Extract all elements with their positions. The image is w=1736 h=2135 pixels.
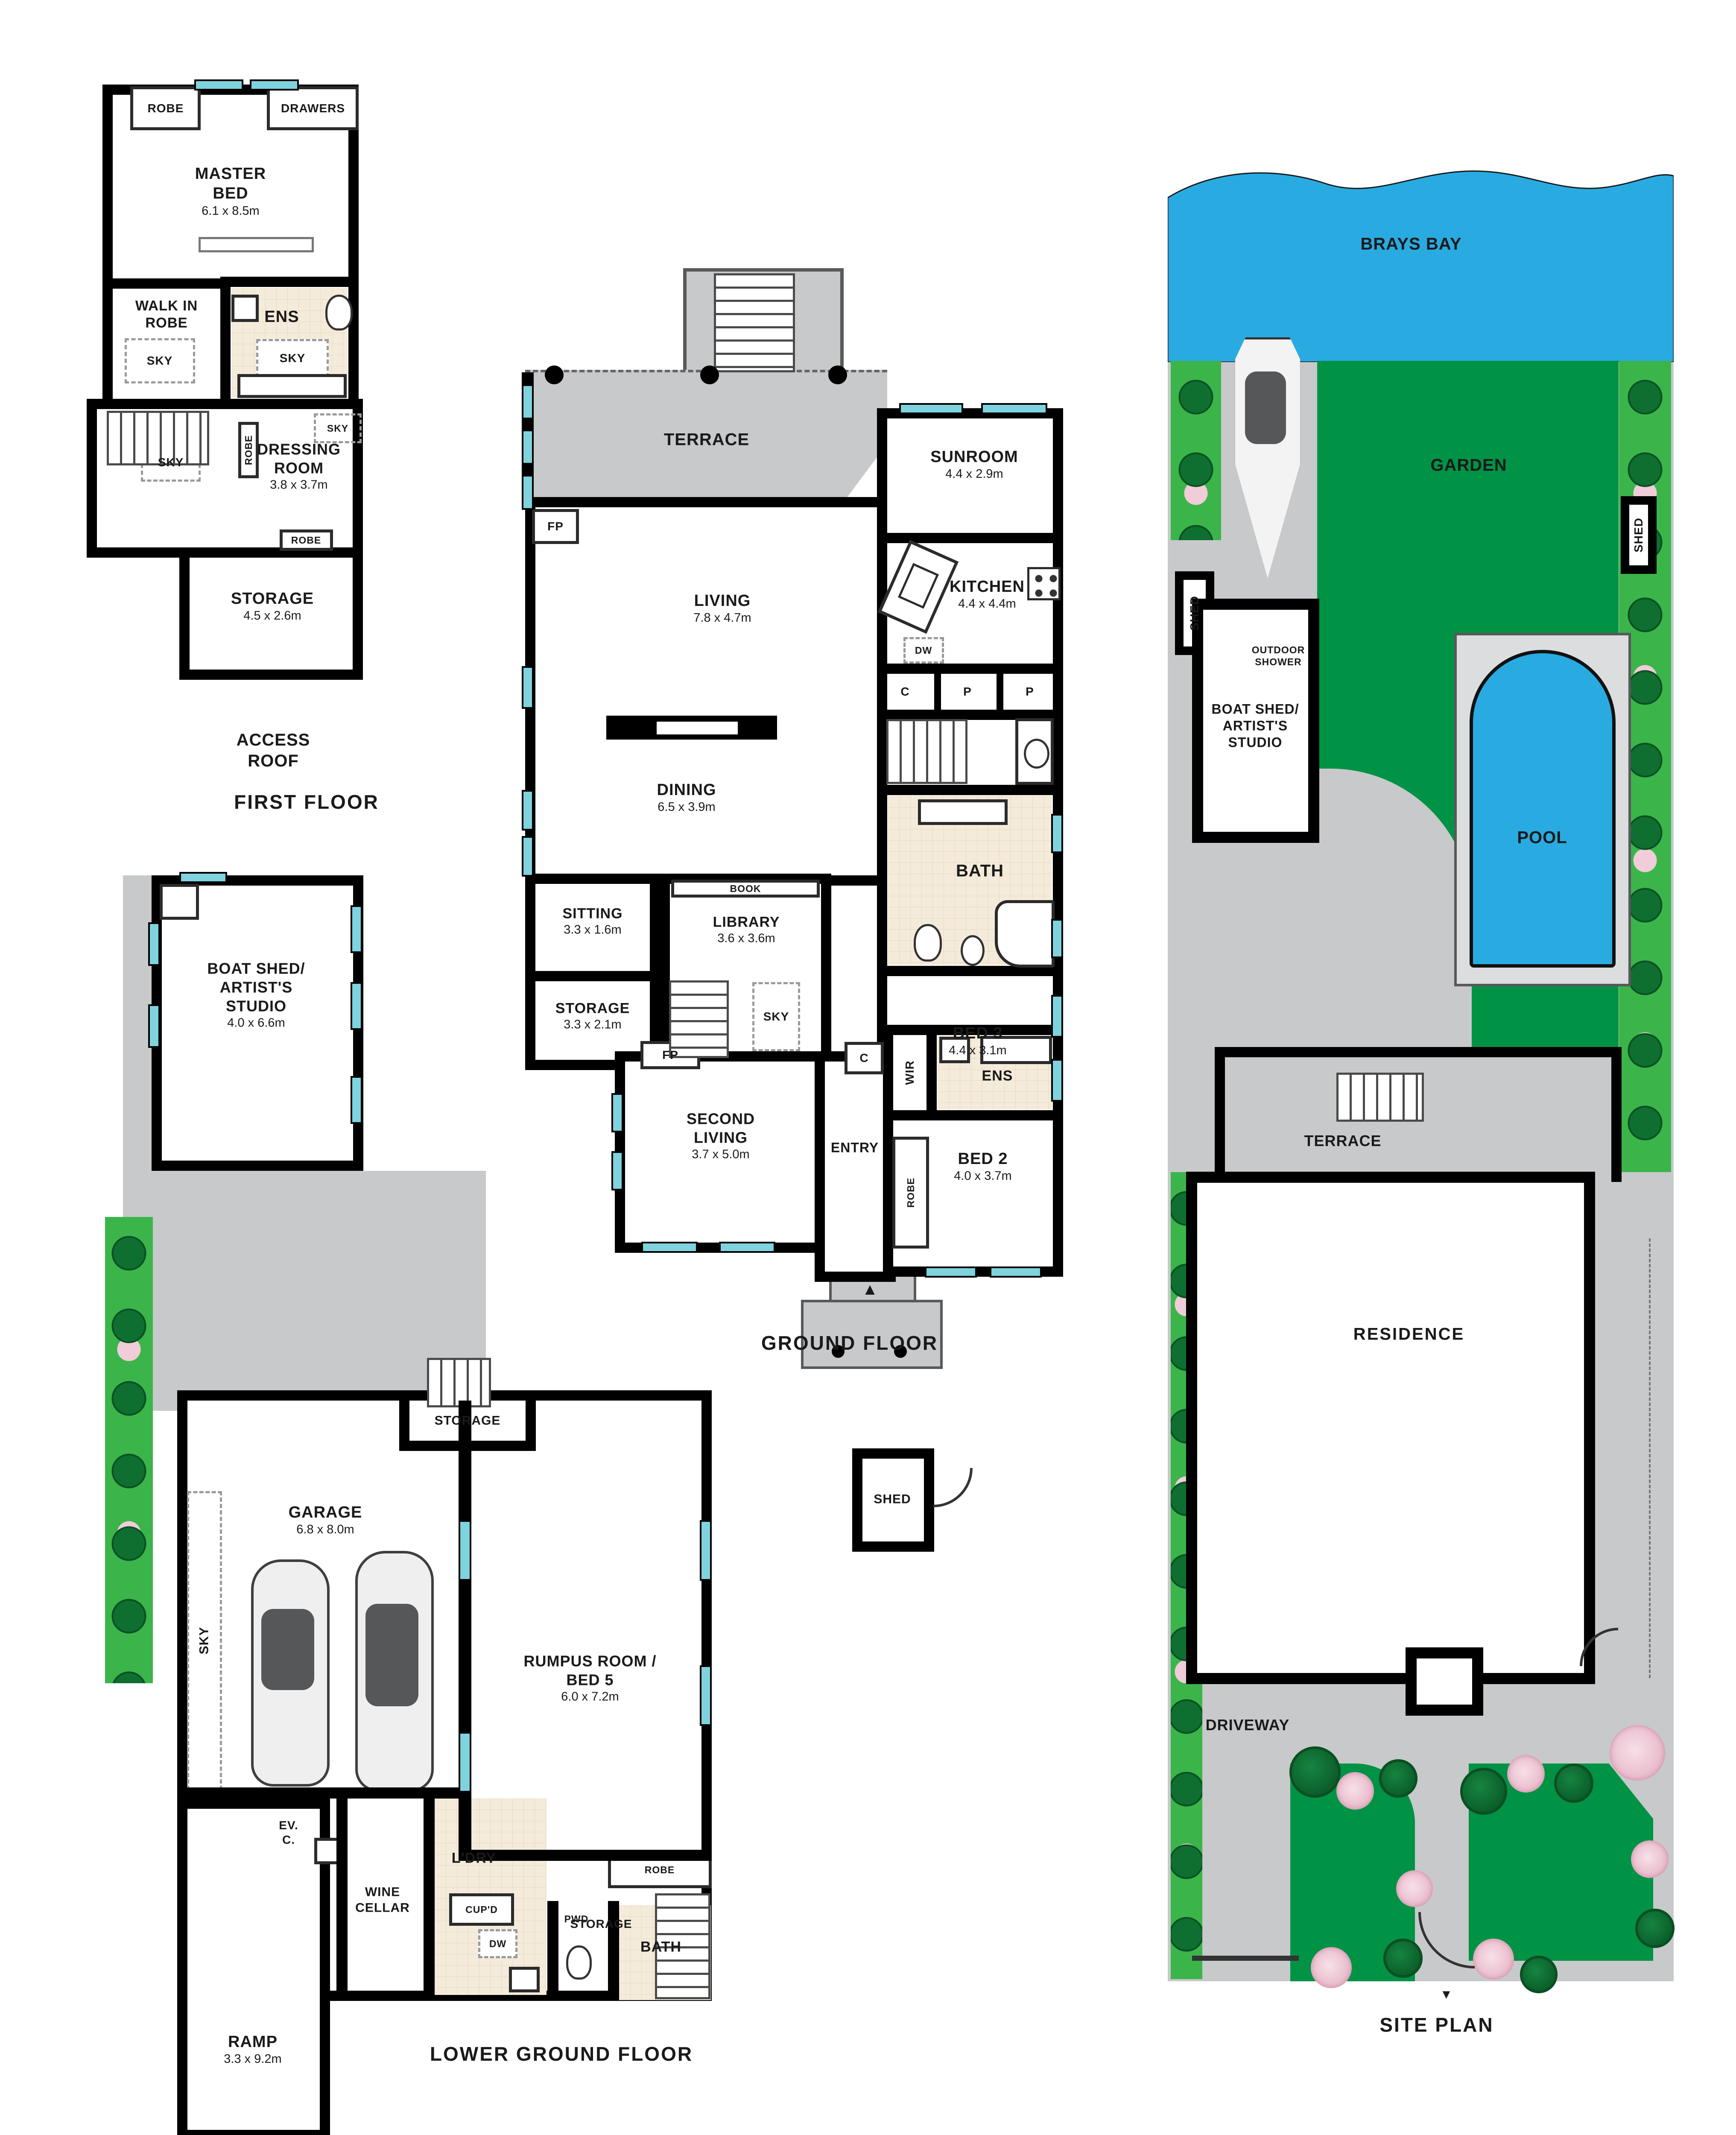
window-icon — [459, 1520, 471, 1581]
flower-icon — [1311, 1947, 1352, 1988]
first-floor-title: FIRST FLOOR — [234, 790, 379, 814]
wall — [608, 1901, 619, 2001]
window-icon — [351, 982, 362, 1030]
window-icon — [522, 430, 534, 465]
site-shed-label: SHED — [1187, 596, 1202, 631]
staircase-icon — [714, 273, 795, 372]
pool-label: POOL — [1517, 828, 1567, 848]
column-icon — [545, 366, 564, 384]
pool — [1470, 650, 1616, 968]
gf-sky-label: SKY — [763, 1009, 789, 1024]
ff-sky-label: SKY — [158, 455, 184, 470]
ff-drawers-label: DRAWERS — [281, 101, 345, 116]
window-icon — [1051, 814, 1063, 853]
ff-master-bed-label: MASTER BED6.1 x 8.5m — [195, 164, 266, 219]
staircase-icon — [1336, 1073, 1424, 1122]
window-icon — [148, 1004, 160, 1048]
ff-robe-label: ROBE — [291, 534, 321, 546]
ff-sky-label: SKY — [147, 354, 173, 368]
lg-ldry-label: L'DRY — [452, 1849, 496, 1867]
bidet-icon — [961, 935, 985, 966]
flower-icon — [1473, 1939, 1514, 1980]
driveway-label: DRIVEWAY — [1206, 1716, 1290, 1734]
boat-cockpit-icon — [1245, 371, 1286, 444]
site-shed-label: SHED — [1631, 518, 1646, 553]
gf-fp-label: FP — [547, 519, 564, 534]
tree-icon — [1554, 1764, 1593, 1803]
entry-arrow-icon: ▲ — [862, 1280, 879, 1299]
window-icon — [351, 1076, 362, 1124]
ff-robe-label: ROBE — [148, 101, 184, 116]
gf-dw-label: DW — [915, 644, 932, 656]
gf-fp-label: FP — [662, 1048, 678, 1062]
wall — [547, 1901, 558, 2001]
gf-dining-label: DINING6.5 x 3.9m — [657, 780, 716, 815]
lg-robe-label: ROBE — [645, 1864, 675, 1876]
car-roof-icon — [365, 1604, 418, 1706]
wall — [424, 1793, 435, 2001]
basin-icon — [231, 295, 259, 322]
wall — [336, 1793, 348, 2001]
brays-bay-label: BRAYS BAY — [1360, 234, 1461, 255]
toilet-icon — [914, 924, 942, 962]
gf-pantry-label: P — [1026, 684, 1034, 699]
gf-sunroom-label: SUNROOM4.4 x 2.9m — [930, 447, 1018, 482]
ff-ens-label: ENS — [264, 307, 299, 327]
basin-icon — [1024, 739, 1049, 769]
ff-walk-in-robe-label: WALK IN ROBE — [135, 297, 198, 332]
gf-wir-label: WIR — [903, 1060, 917, 1085]
window-icon — [522, 384, 534, 419]
window-icon — [925, 1266, 977, 1278]
column-icon — [828, 366, 847, 384]
garden-label: GARDEN — [1430, 455, 1507, 476]
vanity-icon — [918, 799, 1008, 825]
shower-icon — [160, 884, 199, 920]
flower-icon — [1610, 1725, 1665, 1781]
gf-sitting-label: SITTING3.3 x 1.6m — [562, 905, 623, 938]
gf-book-label: BOOK — [730, 883, 761, 895]
toilet-icon — [566, 1945, 592, 1980]
window-icon — [641, 1242, 698, 1253]
tree-icon — [1383, 1939, 1423, 1978]
lg-boat-shed-label: BOAT SHED/ ARTIST'S STUDIO4.0 x 6.6m — [207, 959, 305, 1030]
window-icon — [700, 1520, 712, 1581]
site-porch — [1406, 1647, 1483, 1716]
driveway-dashed-line — [1649, 1238, 1651, 1678]
lg-ramp-label: RAMP3.3 x 9.2m — [224, 2032, 281, 2067]
window-icon — [899, 403, 963, 414]
lower-ground-title: LOWER GROUND FLOOR — [430, 2042, 693, 2066]
staircase-icon — [886, 719, 967, 784]
gf-ens-label: ENS — [982, 1067, 1013, 1085]
column-icon — [700, 366, 719, 384]
tree-icon — [1379, 1759, 1417, 1798]
bathtub-icon — [995, 900, 1055, 968]
gf-entry-label: ENTRY — [831, 1139, 879, 1156]
garden-strip — [105, 1217, 153, 1683]
window-icon — [194, 79, 243, 91]
site-residence — [1186, 1172, 1595, 1684]
flower-icon — [1336, 1772, 1374, 1810]
gf-second-living-label: SECOND LIVING3.7 x 5.0m — [687, 1109, 755, 1162]
lg-wine-cellar-label: WINE CELLAR — [355, 1884, 410, 1916]
window-icon — [250, 79, 299, 91]
lg-rumpus-label: RUMPUS ROOM / BED 56.0 x 7.2m — [523, 1652, 656, 1704]
gf-storage-label: STORAGE3.3 x 2.1m — [555, 1000, 630, 1033]
gf-cupboard-label: C — [859, 1051, 868, 1065]
residence-label: RESIDENCE — [1353, 1324, 1464, 1345]
staircase-icon — [669, 980, 729, 1058]
site-plan-title: SITE PLAN — [1379, 2013, 1493, 2037]
lg-sky-label: SKY — [197, 1627, 213, 1655]
window-icon — [1051, 919, 1063, 958]
driveway-arrow — [1192, 1956, 1299, 1961]
flower-icon — [1631, 1840, 1669, 1878]
gf-bed3-label: BED 34.4 x 3.1m — [949, 1024, 1006, 1059]
gf-kitchen-label: KITCHEN4.4 x 4.4m — [950, 577, 1025, 612]
wall — [997, 669, 1003, 715]
tree-icon — [1460, 1768, 1507, 1815]
gf-living-dining-block — [525, 497, 887, 886]
lg-evc-label: EV. C. — [279, 1818, 298, 1847]
stove-icon — [1027, 567, 1061, 600]
ff-sky-label: SKY — [280, 351, 306, 366]
sink-icon — [509, 1967, 540, 1992]
gf-library-label: LIBRARY3.6 x 3.6m — [713, 914, 780, 947]
window-icon — [522, 790, 534, 831]
bed-icon — [199, 237, 314, 252]
garden-strip — [1171, 361, 1221, 540]
lg-garage-label: GARAGE6.8 x 8.0m — [289, 1503, 362, 1538]
gf-cupboard-label: C — [900, 684, 909, 699]
gf-bed2-label: BED 24.0 x 3.7m — [954, 1149, 1011, 1184]
window-icon — [981, 403, 1047, 414]
window-icon — [522, 836, 534, 877]
window-icon — [990, 1266, 1042, 1278]
ff-robe-label: ROBE — [243, 435, 254, 465]
window-icon — [611, 1151, 623, 1190]
gf-bath-label: BATH — [956, 861, 1004, 882]
site-boat-shed-label: BOAT SHED/ ARTIST'S STUDIO — [1212, 701, 1299, 751]
flower-icon — [1396, 1870, 1433, 1907]
ff-dressing-room-label: DRESSING ROOM3.8 x 3.7m — [257, 440, 341, 492]
wall — [183, 1787, 461, 1799]
door-arc-icon — [933, 1468, 973, 1507]
tree-icon — [1635, 1909, 1675, 1948]
wall — [459, 1850, 712, 1861]
ground-floor-title: GROUND FLOOR — [761, 1331, 938, 1355]
lg-dw-label: DW — [489, 1938, 506, 1950]
staircase-icon — [427, 1358, 491, 1407]
gf-shed-label: SHED — [874, 1492, 911, 1508]
lg-ramp — [177, 1799, 330, 2135]
lg-storage-label: STORAGE — [435, 1413, 501, 1429]
ff-storage-label: STORAGE4.5 x 2.6m — [231, 589, 314, 624]
window-icon — [700, 1665, 712, 1726]
water-shape — [1168, 157, 1674, 362]
tree-icon — [1520, 1956, 1558, 1993]
window-icon — [179, 872, 227, 883]
ff-access-roof-label: ACCESS ROOF — [237, 730, 310, 772]
lg-bath-label: BATH — [640, 1938, 681, 1956]
window-icon — [1051, 1059, 1063, 1102]
gate-arrow-icon: ▼ — [1440, 1987, 1453, 2003]
window-icon — [611, 1093, 623, 1132]
fireplace-icon — [657, 722, 738, 734]
gf-robe-label: ROBE — [905, 1178, 917, 1208]
toilet-icon — [325, 295, 353, 330]
bathtub-icon — [237, 374, 347, 398]
window-icon — [522, 666, 534, 709]
flower-icon — [1507, 1755, 1545, 1793]
window-icon — [148, 922, 160, 966]
gf-terrace-label: TERRACE — [664, 430, 749, 450]
window-icon — [719, 1242, 775, 1253]
wall — [934, 669, 941, 715]
lg-pwd-label: PWD — [564, 1913, 589, 1925]
outdoor-shower-label: OUTDOOR SHOWER — [1252, 644, 1305, 668]
ff-sky-label: SKY — [327, 422, 348, 434]
lg-cupd-label: CUP'D — [465, 1904, 498, 1916]
gf-pantry-label: P — [963, 684, 972, 699]
window-icon — [351, 905, 362, 953]
window-icon — [459, 1732, 471, 1793]
window-icon — [522, 475, 534, 510]
car-interior-icon — [261, 1609, 314, 1690]
window-icon — [1051, 995, 1063, 1038]
site-terrace-label: TERRACE — [1304, 1132, 1381, 1150]
floorplan-page: ROBE DRAWERS MASTER BED6.1 x 8.5m WALK I… — [0, 0, 1736, 2135]
gf-living-label: LIVING7.8 x 4.7m — [693, 591, 751, 626]
tree-icon — [1289, 1746, 1341, 1798]
